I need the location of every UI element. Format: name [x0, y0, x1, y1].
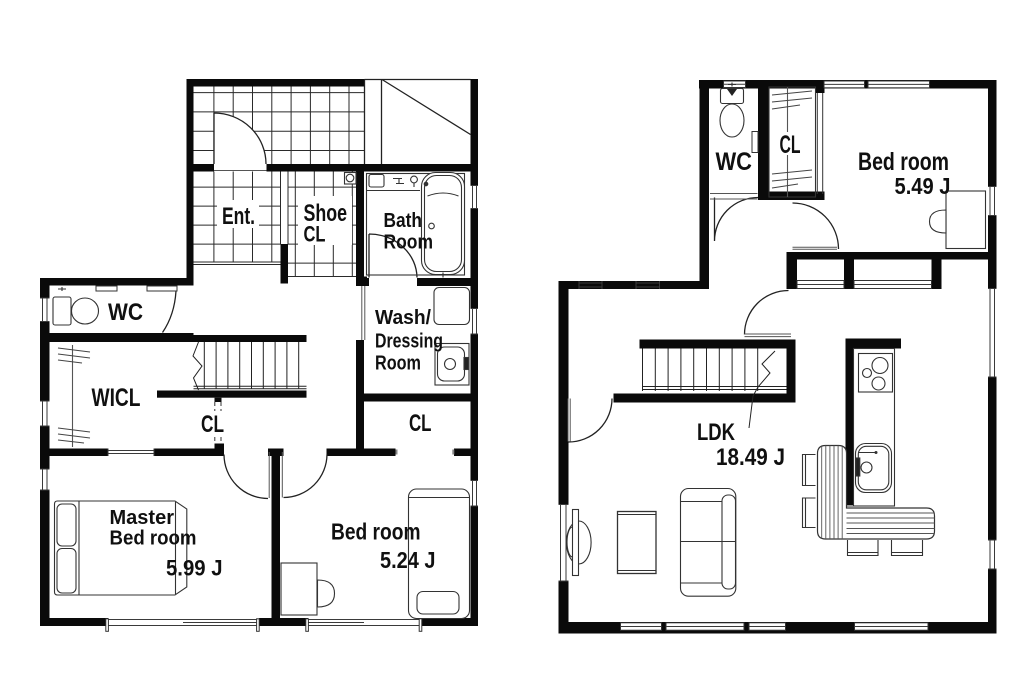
svg-text:Dressing: Dressing — [375, 331, 443, 353]
svg-text:Bath: Bath — [384, 210, 423, 232]
svg-text:WICL: WICL — [92, 384, 141, 412]
svg-text:5.99 J: 5.99 J — [166, 556, 223, 581]
svg-text:CL: CL — [409, 410, 432, 437]
svg-text:WC: WC — [716, 148, 753, 176]
svg-text:Bed room: Bed room — [331, 519, 421, 545]
svg-text:CL: CL — [780, 131, 801, 159]
svg-text:Wash/: Wash/ — [375, 307, 431, 329]
svg-text:Master: Master — [110, 507, 175, 529]
svg-text:Bed room: Bed room — [858, 148, 949, 176]
svg-text:18.49 J: 18.49 J — [716, 444, 785, 471]
svg-text:Bed room: Bed room — [110, 528, 197, 550]
svg-text:CL: CL — [201, 411, 224, 438]
svg-text:Ent.: Ent. — [222, 203, 255, 230]
svg-text:WC: WC — [108, 299, 143, 326]
svg-text:5.24 J: 5.24 J — [380, 547, 436, 573]
svg-text:LDK: LDK — [697, 419, 736, 446]
svg-text:Room: Room — [384, 232, 434, 254]
svg-text:5.49 J: 5.49 J — [895, 173, 951, 199]
svg-text:Room: Room — [375, 353, 421, 375]
svg-text:CL: CL — [304, 222, 326, 247]
